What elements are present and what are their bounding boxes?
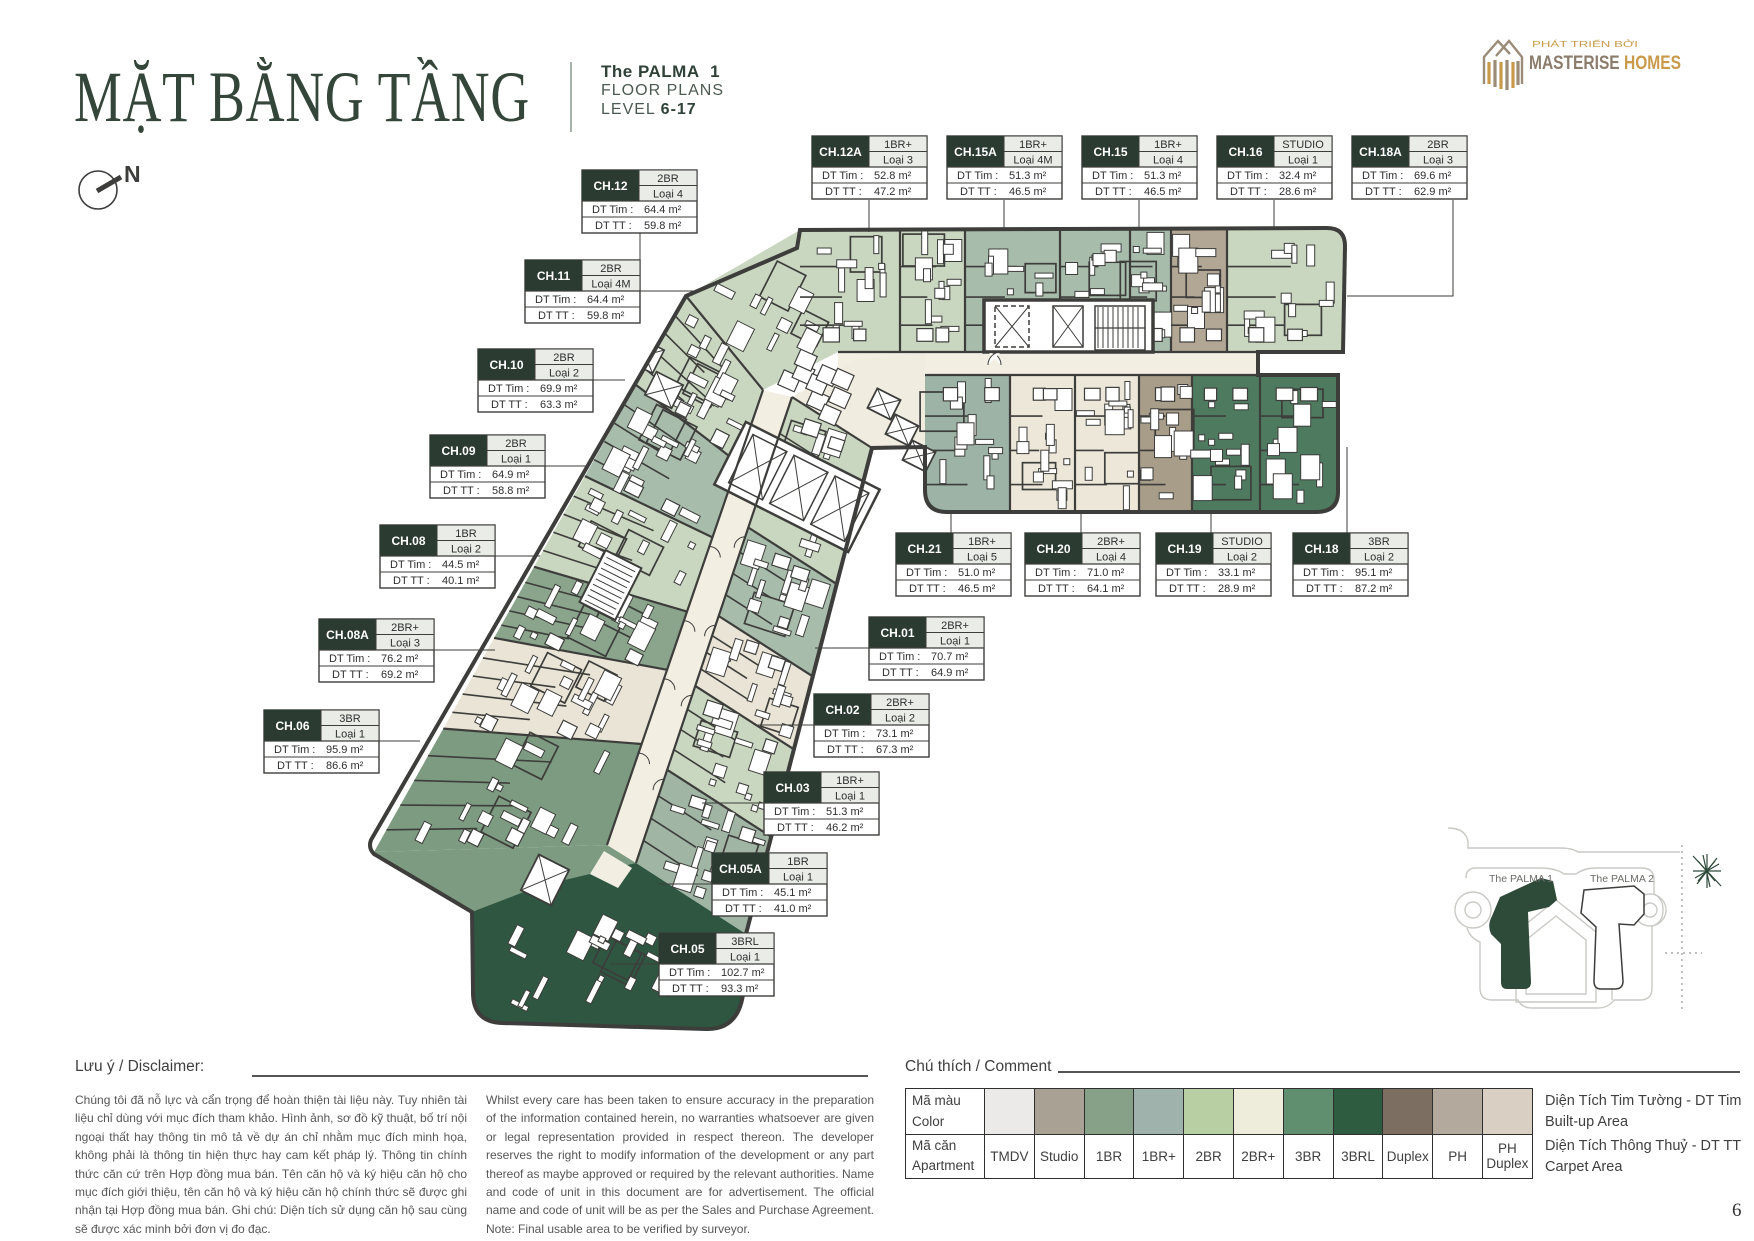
svg-text:DT Tim :: DT Tim : [774,806,815,818]
svg-text:59.8 m²: 59.8 m² [644,220,682,232]
svg-text:DT TT :: DT TT : [672,983,709,995]
svg-text:CH.01: CH.01 [880,626,914,640]
svg-text:DT TT :: DT TT : [443,485,480,497]
svg-text:DT Tim :: DT Tim : [1035,567,1076,579]
svg-text:N: N [124,161,141,187]
svg-text:95.1 m²: 95.1 m² [1355,567,1393,579]
svg-text:DT TT :: DT TT : [393,575,430,587]
svg-text:3BR: 3BR [1368,536,1389,548]
svg-text:46.5 m²: 46.5 m² [958,583,996,595]
svg-text:CH.19: CH.19 [1167,542,1201,556]
svg-text:DT TT :: DT TT : [725,903,762,915]
svg-text:2BR+: 2BR+ [391,622,419,634]
svg-text:1BR+: 1BR+ [884,139,912,151]
svg-text:DT Tim :: DT Tim : [592,204,633,216]
svg-text:DT TT :: DT TT : [277,760,314,772]
svg-text:DT TT :: DT TT : [538,310,575,322]
svg-text:Loại 2: Loại 2 [1227,552,1257,564]
svg-text:Loại 1: Loại 1 [783,872,813,884]
svg-text:Loại 4: Loại 4 [653,189,683,201]
svg-text:CH.03: CH.03 [775,781,809,795]
svg-text:DT TT :: DT TT : [1230,186,1267,198]
svg-text:Loại 1: Loại 1 [335,729,365,741]
svg-text:45.1 m²: 45.1 m² [774,887,812,899]
svg-text:DT TT :: DT TT : [1306,583,1343,595]
svg-text:Loại 1: Loại 1 [835,791,865,803]
svg-text:46.5 m²: 46.5 m² [1009,186,1047,198]
svg-text:CH.08A: CH.08A [326,628,369,642]
svg-text:1BR+: 1BR+ [1019,139,1047,151]
svg-text:MASTERISE HOMES: MASTERISE HOMES [1529,53,1681,74]
svg-text:28.6 m²: 28.6 m² [1279,186,1317,198]
svg-text:Loại 5: Loại 5 [967,552,997,564]
svg-text:DT Tim :: DT Tim : [1166,567,1207,579]
svg-text:CH.20: CH.20 [1036,542,1070,556]
svg-text:CH.10: CH.10 [489,358,523,372]
svg-text:70.7 m²: 70.7 m² [931,651,969,663]
svg-text:DT Tim :: DT Tim : [906,567,947,579]
svg-text:DT TT :: DT TT : [1038,583,1075,595]
svg-text:Loại 2: Loại 2 [885,713,915,725]
svg-text:CH.18: CH.18 [1304,542,1338,556]
svg-text:DT TT :: DT TT : [882,667,919,679]
svg-text:DT TT :: DT TT : [960,186,997,198]
svg-text:DT Tim :: DT Tim : [957,170,998,182]
svg-text:87.2 m²: 87.2 m² [1355,583,1393,595]
svg-text:Loại 3: Loại 3 [1423,155,1453,167]
svg-text:64.1 m²: 64.1 m² [1087,583,1125,595]
svg-text:DT TT :: DT TT : [777,822,814,834]
svg-text:51.3 m²: 51.3 m² [1144,170,1182,182]
svg-text:58.8 m²: 58.8 m² [492,485,530,497]
svg-text:46.5 m²: 46.5 m² [1144,186,1182,198]
svg-text:32.4 m²: 32.4 m² [1279,170,1317,182]
svg-text:The PALMA 2: The PALMA 2 [1590,873,1654,885]
svg-text:Loại 2: Loại 2 [549,368,579,380]
svg-text:63.3 m²: 63.3 m² [540,399,578,411]
svg-text:DT TT :: DT TT : [827,744,864,756]
svg-text:2BR: 2BR [600,263,621,275]
svg-text:CH.15: CH.15 [1093,145,1127,159]
svg-text:2BR+: 2BR+ [886,697,914,709]
svg-text:44.5 m²: 44.5 m² [442,559,480,571]
svg-text:CH.12A: CH.12A [819,145,862,159]
svg-text:69.9 m²: 69.9 m² [540,383,578,395]
svg-text:67.3 m²: 67.3 m² [876,744,914,756]
svg-text:DT TT :: DT TT : [1365,186,1402,198]
svg-text:93.3 m²: 93.3 m² [721,983,759,995]
svg-text:DT Tim :: DT Tim : [274,744,315,756]
svg-text:76.2 m²: 76.2 m² [381,653,419,665]
svg-text:62.9 m²: 62.9 m² [1414,186,1452,198]
svg-text:2BR+: 2BR+ [941,620,969,632]
svg-text:73.1 m²: 73.1 m² [876,728,914,740]
svg-text:PHÁT TRIỂN BỞI: PHÁT TRIỂN BỞI [1532,40,1638,49]
svg-text:2BR+: 2BR+ [1097,536,1125,548]
svg-text:CH.02: CH.02 [825,703,859,717]
svg-text:Loại 2: Loại 2 [1364,552,1394,564]
svg-text:64.4 m²: 64.4 m² [644,204,682,216]
svg-text:86.6 m²: 86.6 m² [326,760,364,772]
svg-text:69.6 m²: 69.6 m² [1414,170,1452,182]
svg-text:52.8 m²: 52.8 m² [874,170,912,182]
svg-text:47.2 m²: 47.2 m² [874,186,912,198]
svg-text:DT TT :: DT TT : [825,186,862,198]
svg-text:3BRL: 3BRL [731,936,759,948]
svg-text:46.2 m²: 46.2 m² [826,822,864,834]
svg-text:Loại 3: Loại 3 [883,155,913,167]
svg-text:Loại 1: Loại 1 [1288,155,1318,167]
svg-text:DT TT :: DT TT : [1169,583,1206,595]
svg-text:DT Tim :: DT Tim : [440,469,481,481]
svg-text:2BR: 2BR [553,352,574,364]
svg-text:DT Tim :: DT Tim : [669,967,710,979]
svg-text:33.1 m²: 33.1 m² [1218,567,1256,579]
svg-text:Loại 4M: Loại 4M [1013,155,1052,167]
svg-text:DT Tim :: DT Tim : [1303,567,1344,579]
svg-text:DT TT :: DT TT : [332,669,369,681]
svg-text:64.4 m²: 64.4 m² [587,294,625,306]
svg-text:DT Tim :: DT Tim : [824,728,865,740]
svg-text:CH.08: CH.08 [391,534,425,548]
svg-text:CH.05A: CH.05A [719,862,762,876]
svg-text:28.9 m²: 28.9 m² [1218,583,1256,595]
svg-text:51.3 m²: 51.3 m² [1009,170,1047,182]
svg-text:Loại 1: Loại 1 [730,952,760,964]
svg-text:1BR: 1BR [787,856,808,868]
svg-text:DT Tim :: DT Tim : [1092,170,1133,182]
svg-text:40.1 m²: 40.1 m² [442,575,480,587]
svg-text:1BR+: 1BR+ [1154,139,1182,151]
svg-text:Loại 1: Loại 1 [501,454,531,466]
svg-text:2BR: 2BR [1427,139,1448,151]
svg-text:1BR+: 1BR+ [968,536,996,548]
svg-text:102.7 m²: 102.7 m² [721,967,765,979]
svg-text:71.0 m²: 71.0 m² [1087,567,1125,579]
svg-text:Loại 4: Loại 4 [1153,155,1183,167]
svg-text:DT Tim :: DT Tim : [722,887,763,899]
svg-text:CH.15A: CH.15A [954,145,997,159]
svg-text:DT TT :: DT TT : [909,583,946,595]
svg-text:DT TT :: DT TT : [595,220,632,232]
svg-text:Loại 4: Loại 4 [1096,552,1126,564]
svg-text:95.9 m²: 95.9 m² [326,744,364,756]
svg-text:STUDIO: STUDIO [1282,139,1324,151]
svg-text:3BR: 3BR [339,713,360,725]
svg-text:69.2 m²: 69.2 m² [381,669,419,681]
svg-text:CH.12: CH.12 [593,179,627,193]
svg-text:1BR+: 1BR+ [836,775,864,787]
svg-text:DT Tim :: DT Tim : [879,651,920,663]
svg-text:DT Tim :: DT Tim : [822,170,863,182]
svg-text:Loại 3: Loại 3 [390,638,420,650]
svg-text:Loại 1: Loại 1 [940,636,970,648]
svg-text:41.0 m²: 41.0 m² [774,903,812,915]
svg-text:DT Tim :: DT Tim : [329,653,370,665]
svg-text:CH.06: CH.06 [275,719,309,733]
svg-text:51.3 m²: 51.3 m² [826,806,864,818]
svg-text:64.9 m²: 64.9 m² [931,667,969,679]
svg-text:STUDIO: STUDIO [1221,536,1263,548]
svg-text:1BR: 1BR [455,528,476,540]
svg-text:CH.16: CH.16 [1228,145,1262,159]
svg-text:CH.05: CH.05 [670,942,704,956]
svg-text:DT Tim :: DT Tim : [390,559,431,571]
svg-text:Loại 2: Loại 2 [451,544,481,556]
svg-text:CH.09: CH.09 [441,444,475,458]
svg-text:CH.18A: CH.18A [1359,145,1402,159]
svg-text:Loại 4M: Loại 4M [591,279,630,291]
svg-text:51.0 m²: 51.0 m² [958,567,996,579]
svg-text:64.9 m²: 64.9 m² [492,469,530,481]
svg-text:DT Tim :: DT Tim : [1227,170,1268,182]
svg-text:DT Tim :: DT Tim : [535,294,576,306]
svg-text:2BR: 2BR [657,173,678,185]
svg-text:The PALMA 1: The PALMA 1 [1489,873,1553,885]
svg-text:CH.11: CH.11 [537,269,571,283]
svg-text:DT Tim :: DT Tim : [1362,170,1403,182]
svg-text:CH.21: CH.21 [907,542,941,556]
svg-text:59.8 m²: 59.8 m² [587,310,625,322]
svg-text:DT TT :: DT TT : [1095,186,1132,198]
svg-text:DT TT :: DT TT : [491,399,528,411]
svg-text:DT Tim :: DT Tim : [488,383,529,395]
svg-text:2BR: 2BR [505,438,526,450]
